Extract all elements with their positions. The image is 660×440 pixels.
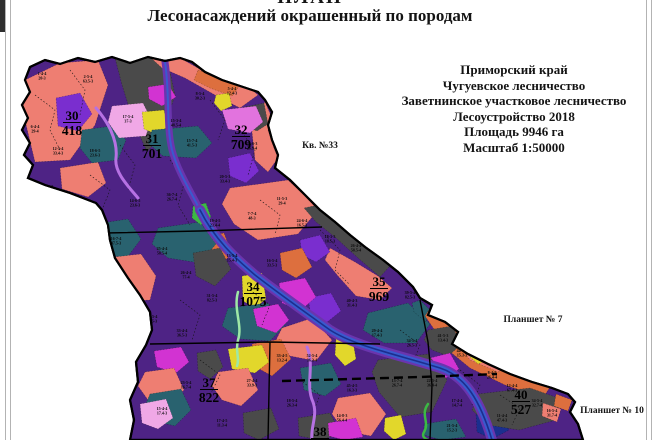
parcel-label: 15-7-441.5-3 <box>187 138 198 147</box>
parcel-label: 40-4-331.4-3 <box>347 298 358 307</box>
parcel-label: 18-3-318.5-3 <box>325 234 336 243</box>
parcel-label: 12-5-433.4-3 <box>53 146 64 155</box>
quarter-number: 40 <box>515 387 528 402</box>
parcel-label: 34-5-432.7-4 <box>532 398 543 407</box>
parcel-label: 37-7-444.3-3 <box>385 250 396 259</box>
quarter-boundary <box>26 46 30 66</box>
parcel-label: 36-7-426.7-4 <box>167 192 178 201</box>
quarter-area: 418 <box>62 123 83 138</box>
quarter-number: 35 <box>373 274 387 289</box>
parcel-label: 17-4-414.7-4 <box>452 398 463 407</box>
parcel-label: 8-5-430.2-3 <box>195 91 205 100</box>
quarter-area: 701 <box>142 146 163 161</box>
quarter-area: 1075 <box>240 294 267 309</box>
parcel-label: 29-4-417.4-3 <box>372 328 383 337</box>
parcel-label: 18-6-523.6-3 <box>90 148 101 157</box>
quarter-number: 31 <box>146 131 159 146</box>
forest-map: 1-4-420-32-5-463.5-36-4-429-412-5-433.4-… <box>0 0 660 440</box>
quarter-area: 822 <box>199 390 220 405</box>
map-annotation: Планшет № 7 <box>504 315 563 325</box>
parcel-label: 31-5-482.5-3 <box>207 293 218 302</box>
quarter-area: 709 <box>231 137 252 152</box>
parcel-label: 20-5-333.4-3 <box>220 174 231 183</box>
parcel-label: 34-5-426.5-3 <box>407 338 418 347</box>
parcel-label: 19-4-523.4-4 <box>210 218 221 227</box>
parcel-label: 16-5-431.7-4 <box>547 408 558 417</box>
parcel-label: 18-5-426.3-4 <box>287 398 298 407</box>
parcel-label: 13-5-415.4-3 <box>227 253 238 262</box>
parcel-label: 27-4-433.9-3 <box>247 378 258 387</box>
parcel-label: 17-4-511.3-4 <box>217 418 228 427</box>
parcel-label: 15-4-417.4-3 <box>157 406 168 415</box>
parcel-label: 15-3-448.5-4 <box>171 118 182 127</box>
parcel-label: 16-7-447.5-3 <box>111 236 122 245</box>
quarter-number: 30 <box>66 108 79 123</box>
parcel-label: 39-5-482.5-3 <box>405 290 416 299</box>
parcel-label: 16-5-433.5-3 <box>267 258 278 267</box>
parcel-label: 11-4-447.4-3 <box>497 413 507 422</box>
parcel-label: 24-6-416.5-3 <box>297 218 308 227</box>
quarter-number: 37 <box>203 375 217 390</box>
parcel-label: 13-7-426.7-4 <box>392 378 403 387</box>
parcel-label: 45-4-516.3-3 <box>347 383 358 392</box>
parcel-label: 25-4-458.5-4 <box>157 246 168 255</box>
parcel-label: 34-4-544.5-3 <box>70 216 81 225</box>
parcel-label: 41-5-313.4-3 <box>438 333 449 342</box>
parcel-label: 6-4-429-4 <box>31 124 40 133</box>
quarter-area: 969 <box>369 289 390 304</box>
quarter-area: 527 <box>511 402 532 417</box>
quarter-number: 38 <box>314 424 328 439</box>
parcel-label: 21-5-415.2-3 <box>447 423 458 432</box>
parcel-label: 7-7-448-3 <box>248 211 257 220</box>
parcel-label: 14-6-523.6-3 <box>130 198 141 207</box>
map-annotation: Кв. №33 <box>302 141 338 151</box>
parcel-label: 1-4-420-3 <box>38 71 47 80</box>
parcel-label: 26-4-458.5-4 <box>351 243 362 252</box>
parcel-label: 52-5-436.3-4 <box>307 353 318 362</box>
map-sheet: { "page": { "title_top": "ПЛАН", "title_… <box>0 0 660 440</box>
quarter-number: 32 <box>235 122 248 137</box>
parcel-label: 33-4-513.2-4 <box>277 353 288 362</box>
quarter-number: 34 <box>247 279 261 294</box>
parcel-label: 33-4-436.5-3 <box>177 328 188 337</box>
parcel-label: 5-4-412.4-3 <box>227 86 237 95</box>
parcel-label: 2-5-463.5-3 <box>83 74 93 83</box>
parcel-label: 8-4-526.4-4 <box>487 370 497 379</box>
parcel-label: 23-5-416.7-4 <box>181 380 192 389</box>
parcel-label: 14-8-356.4-4 <box>337 413 348 422</box>
map-annotation: Планшет № 10 <box>580 406 644 416</box>
quarter-boundary <box>258 88 292 92</box>
parcel-label: 22-5-436.4-4 <box>427 378 438 387</box>
parcel-label: 11-5-329-4 <box>277 196 287 205</box>
